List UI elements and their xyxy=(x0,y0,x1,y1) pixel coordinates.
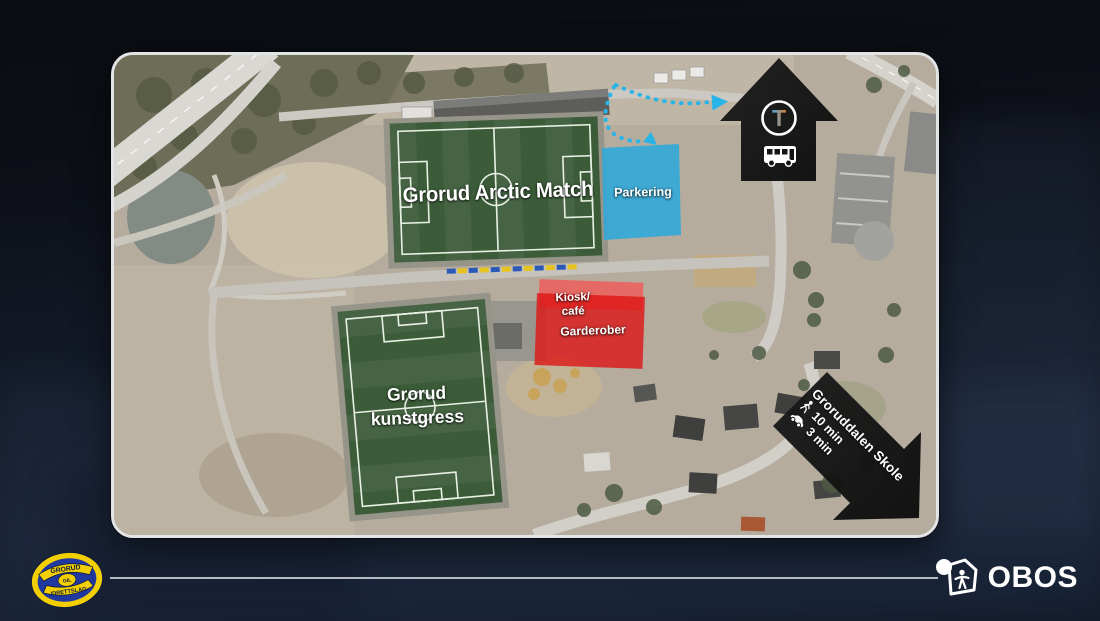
kiosk-label: Kiosk/ café xyxy=(555,290,590,320)
kiosk-label-line1: Kiosk/ xyxy=(555,290,590,306)
pitch-secondary-label: Grorud kunstgress xyxy=(370,380,465,432)
footer-divider xyxy=(110,577,938,579)
obos-wordmark: OBOS xyxy=(988,561,1078,595)
club-logo-center-text: GIL xyxy=(63,578,72,585)
pitch-secondary-label-line2: kunstgress xyxy=(370,404,464,432)
grorud-club-logo: GRORUD GIL IDRETTSLAG xyxy=(27,548,107,612)
aerial-map-frame: T Grorud Arctic Match Grorud kunstgress xyxy=(111,52,939,538)
kiosk-label-line2: café xyxy=(556,304,591,320)
slide-background: T Grorud Arctic Match Grorud kunstgress xyxy=(0,0,1100,621)
pitch-secondary-label-line1: Grorud xyxy=(370,380,464,408)
locker-label: Garderober xyxy=(560,322,626,339)
obos-logo: OBOS xyxy=(935,557,1078,599)
svg-text:T: T xyxy=(772,105,786,131)
parking-label: Parkering xyxy=(614,185,672,202)
background-glow xyxy=(930,120,1100,540)
obos-house-icon xyxy=(935,557,979,599)
aerial-map: T xyxy=(114,55,936,535)
